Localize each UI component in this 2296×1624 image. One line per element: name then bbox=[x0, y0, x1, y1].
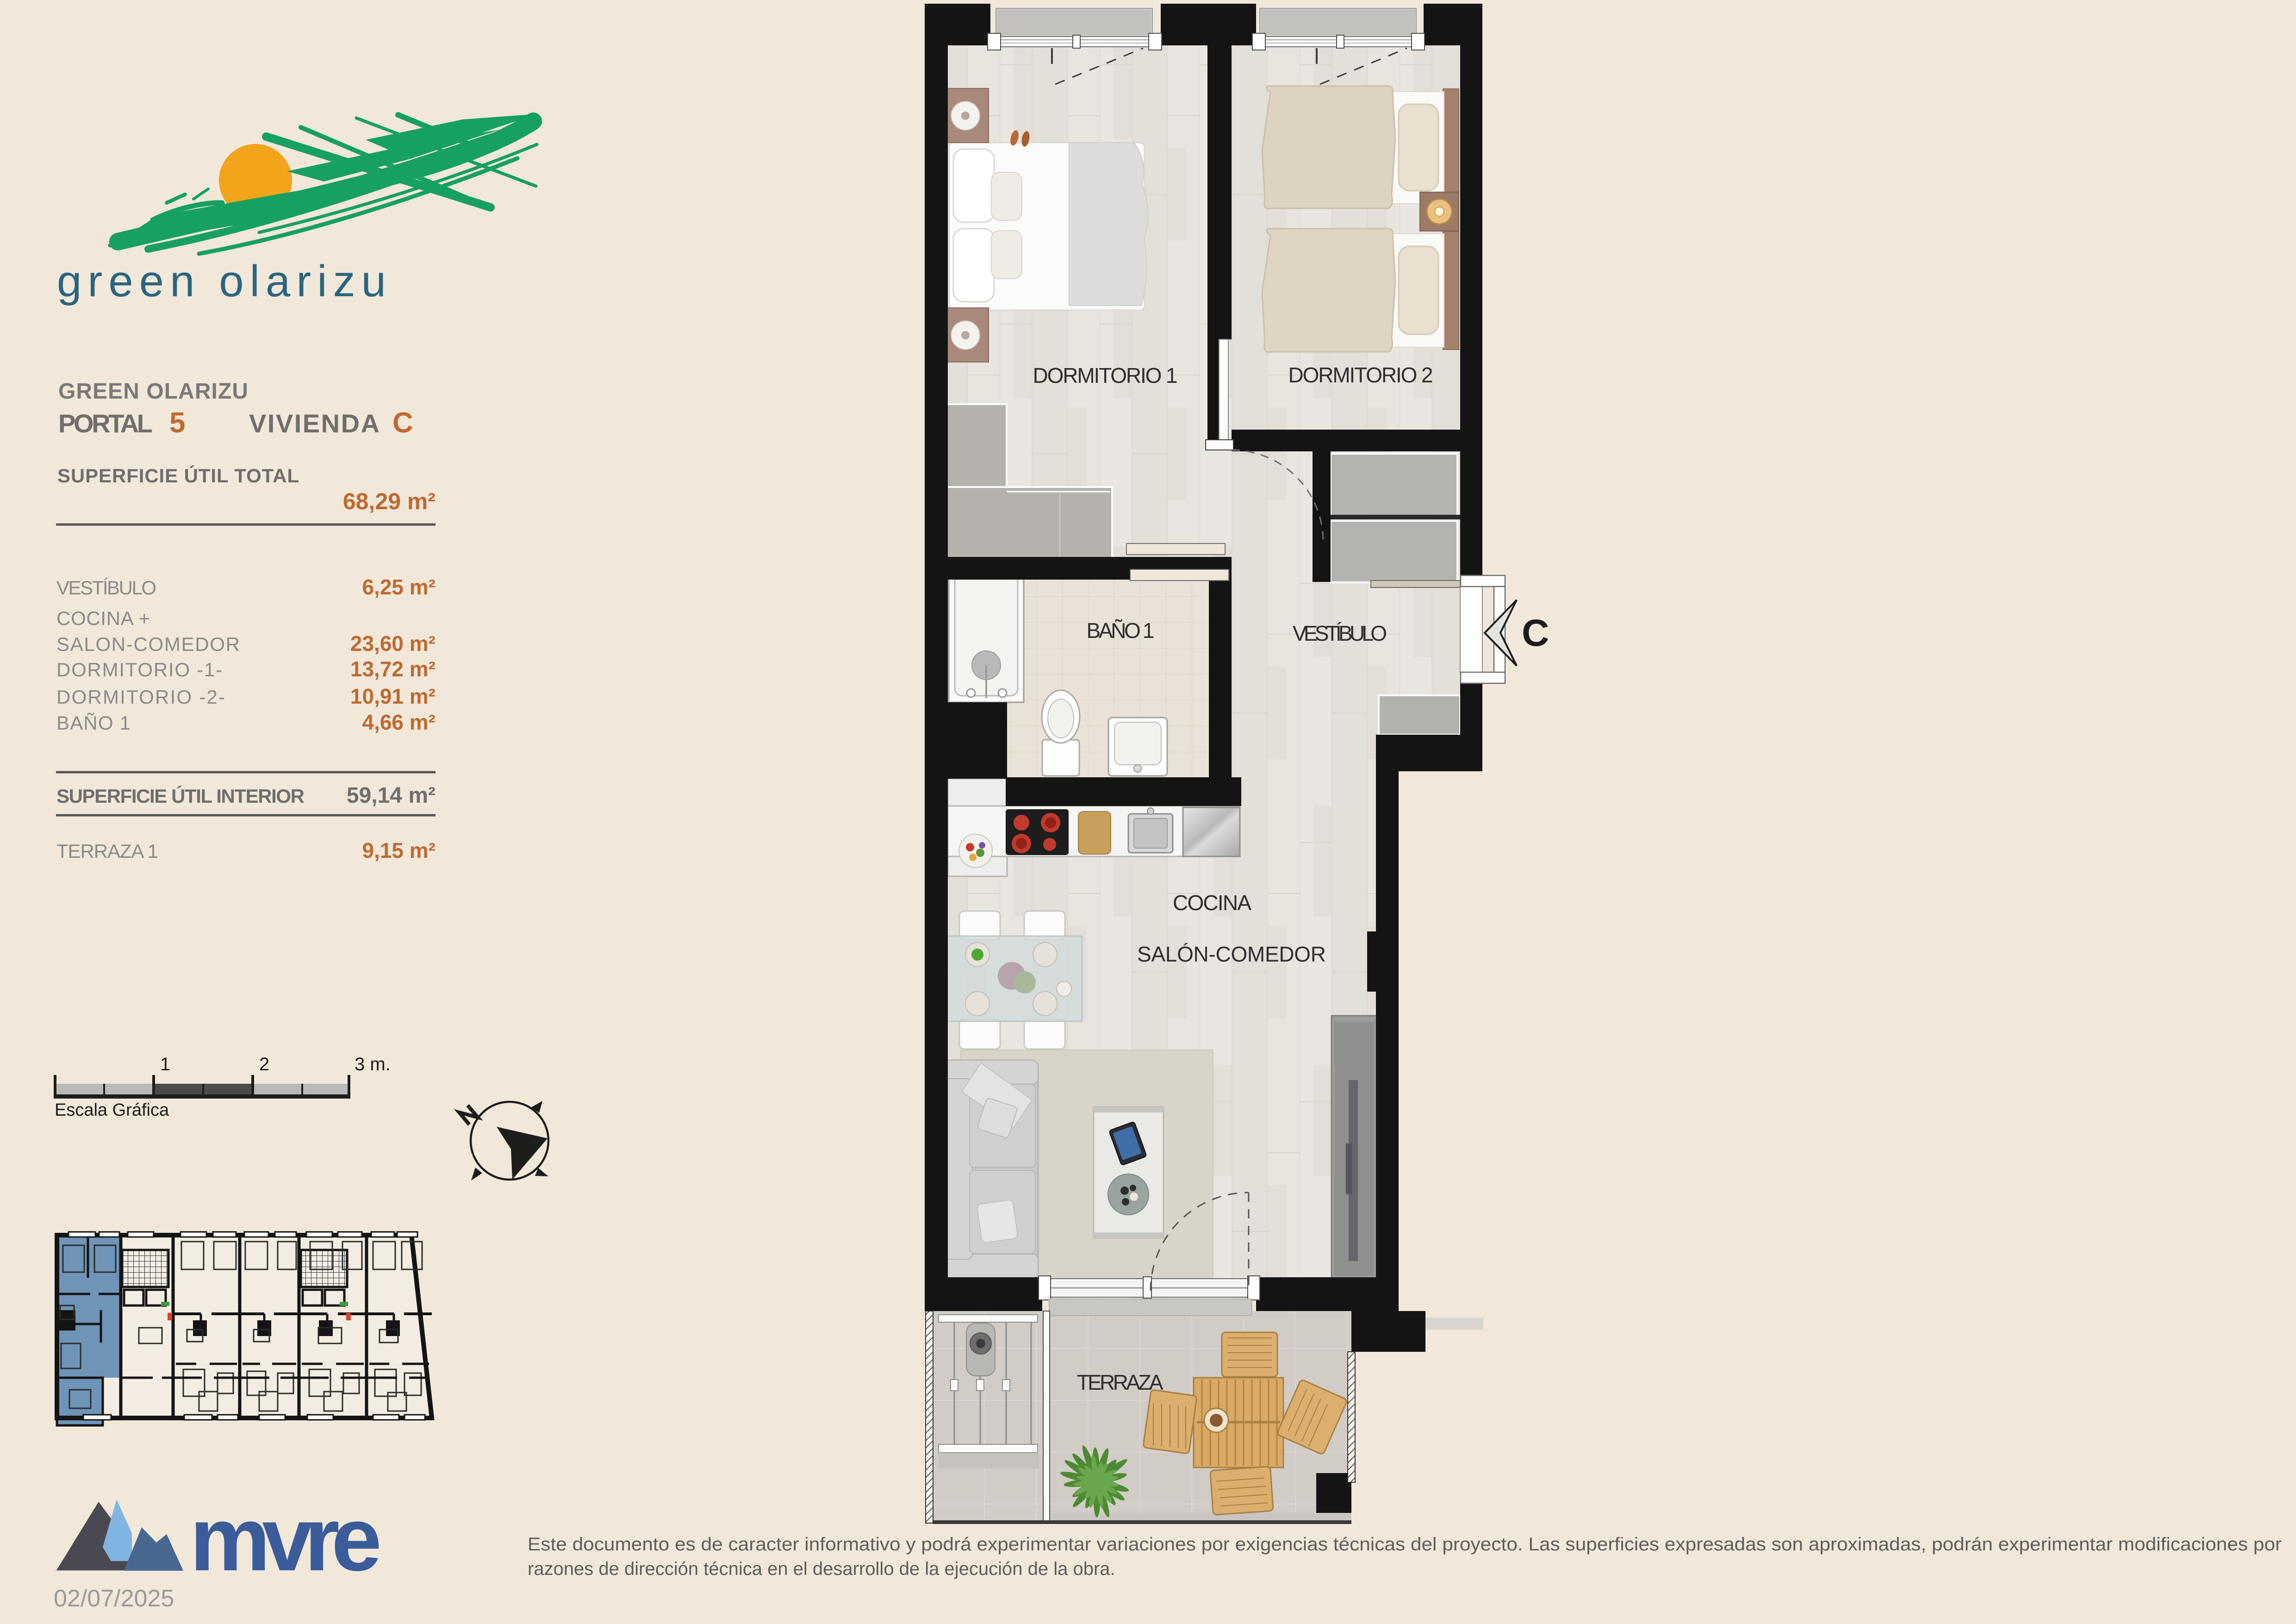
svg-text:1: 1 bbox=[160, 1054, 170, 1074]
svg-text:VESTÍBULO: VESTÍBULO bbox=[56, 577, 157, 599]
svg-text:COCINA: COCINA bbox=[1173, 891, 1251, 915]
svg-text:BAÑO 1: BAÑO 1 bbox=[1087, 618, 1155, 643]
svg-text:9,15 m²: 9,15 m² bbox=[362, 838, 436, 862]
svg-text:DORMITORIO 2: DORMITORIO 2 bbox=[1288, 363, 1433, 387]
svg-text:6,25 m²: 6,25 m² bbox=[362, 575, 436, 599]
svg-text:DORMITORIO 1: DORMITORIO 1 bbox=[1033, 363, 1178, 387]
svg-text:C: C bbox=[1522, 612, 1549, 654]
svg-text:59,14 m²: 59,14 m² bbox=[347, 783, 436, 808]
svg-text:2: 2 bbox=[259, 1054, 269, 1074]
svg-text:4,66 m²: 4,66 m² bbox=[362, 710, 436, 734]
svg-text:PORTAL: PORTAL bbox=[58, 409, 153, 438]
svg-text:DORMITORIO -2-: DORMITORIO -2- bbox=[56, 686, 226, 708]
svg-text:TERRAZA 1: TERRAZA 1 bbox=[56, 840, 159, 862]
svg-text:SALON-COMEDOR: SALON-COMEDOR bbox=[56, 633, 241, 655]
svg-text:Escala Gráfica: Escala Gráfica bbox=[55, 1100, 169, 1120]
svg-text:mvre: mvre bbox=[190, 1488, 382, 1590]
svg-text:68,29 m²: 68,29 m² bbox=[343, 488, 436, 514]
svg-text:SUPERFICIE ÚTIL TOTAL: SUPERFICIE ÚTIL TOTAL bbox=[57, 464, 299, 487]
svg-text:Este documento es de caracter: Este documento es de caracter informativ… bbox=[528, 1534, 2282, 1555]
svg-text:23,60 m²: 23,60 m² bbox=[350, 631, 436, 656]
svg-text:COCINA +: COCINA + bbox=[56, 607, 151, 629]
svg-text:02/07/2025: 02/07/2025 bbox=[54, 1585, 174, 1612]
svg-text:TERRAZA: TERRAZA bbox=[1077, 1370, 1164, 1394]
svg-text:VESTÍBULO: VESTÍBULO bbox=[1293, 621, 1387, 645]
svg-text:DORMITORIO -1-: DORMITORIO -1- bbox=[56, 659, 223, 681]
svg-text:SUPERFICIE ÚTIL INTERIOR: SUPERFICIE ÚTIL INTERIOR bbox=[56, 785, 305, 807]
svg-text:13,72 m²: 13,72 m² bbox=[350, 657, 436, 681]
svg-text:5: 5 bbox=[169, 407, 185, 439]
svg-text:razones de dirección técnica e: razones de dirección técnica en el desar… bbox=[528, 1559, 1115, 1579]
svg-text:SALÓN-COMEDOR: SALÓN-COMEDOR bbox=[1137, 942, 1326, 966]
svg-text:BAÑO 1: BAÑO 1 bbox=[56, 712, 131, 734]
svg-text:GREEN OLARIZU: GREEN OLARIZU bbox=[58, 379, 248, 404]
svg-text:3 m.: 3 m. bbox=[355, 1054, 391, 1074]
svg-text:10,91 m²: 10,91 m² bbox=[350, 684, 436, 708]
svg-text:C: C bbox=[392, 407, 413, 439]
svg-text:green olarizu: green olarizu bbox=[57, 256, 392, 306]
